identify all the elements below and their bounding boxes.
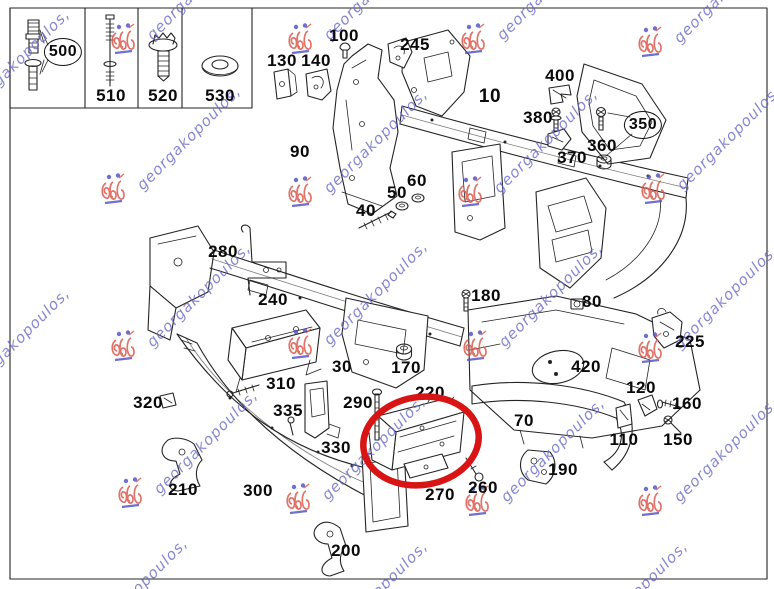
part-label-200: 200 — [331, 541, 361, 561]
part-label-380: 380 — [523, 108, 553, 128]
part-label-360: 360 — [587, 136, 617, 156]
part-label-50: 50 — [387, 183, 407, 203]
part-label-140: 140 — [301, 51, 331, 71]
part-label-220: 220 — [415, 383, 445, 403]
part-label-500: 500 — [44, 38, 82, 66]
part-label-170: 170 — [391, 358, 421, 378]
part-label-100: 100 — [329, 26, 359, 46]
part-label-510: 510 — [96, 86, 126, 106]
part-label-530: 530 — [205, 86, 235, 106]
part-label-300: 300 — [243, 481, 273, 501]
part-label-70: 70 — [514, 411, 534, 431]
part-label-80: 80 — [582, 292, 602, 312]
part-label-90: 90 — [290, 142, 310, 162]
part-labels-layer: 5005105205301001301402451040038035036037… — [0, 0, 774, 589]
part-label-310: 310 — [266, 374, 296, 394]
part-label-10: 10 — [479, 86, 501, 108]
part-label-350: 350 — [624, 111, 662, 139]
part-label-60: 60 — [407, 171, 427, 191]
parts-diagram-canvas: georgakopoulos,georgakopoulos,georgakopo… — [0, 0, 774, 589]
part-label-210: 210 — [168, 480, 198, 500]
part-label-280: 280 — [208, 242, 238, 262]
part-label-320: 320 — [133, 393, 163, 413]
part-label-30: 30 — [332, 357, 352, 377]
part-label-225: 225 — [675, 332, 705, 352]
part-label-245: 245 — [400, 35, 430, 55]
part-label-260: 260 — [468, 478, 498, 498]
part-label-420: 420 — [571, 357, 601, 377]
part-label-150: 150 — [663, 430, 693, 450]
part-label-290: 290 — [343, 393, 373, 413]
part-label-130: 130 — [267, 51, 297, 71]
part-label-270: 270 — [425, 485, 455, 505]
part-label-160: 160 — [672, 394, 702, 414]
part-label-190: 190 — [548, 460, 578, 480]
part-label-40: 40 — [356, 201, 376, 221]
part-label-110: 110 — [610, 430, 639, 450]
part-label-400: 400 — [545, 66, 575, 86]
part-label-240: 240 — [258, 290, 288, 310]
part-label-370: 370 — [557, 148, 587, 168]
part-label-520: 520 — [148, 86, 178, 106]
part-label-330: 330 — [321, 438, 351, 458]
part-label-120: 120 — [626, 378, 656, 398]
part-label-180: 180 — [471, 286, 501, 306]
part-label-335: 335 — [273, 401, 303, 421]
